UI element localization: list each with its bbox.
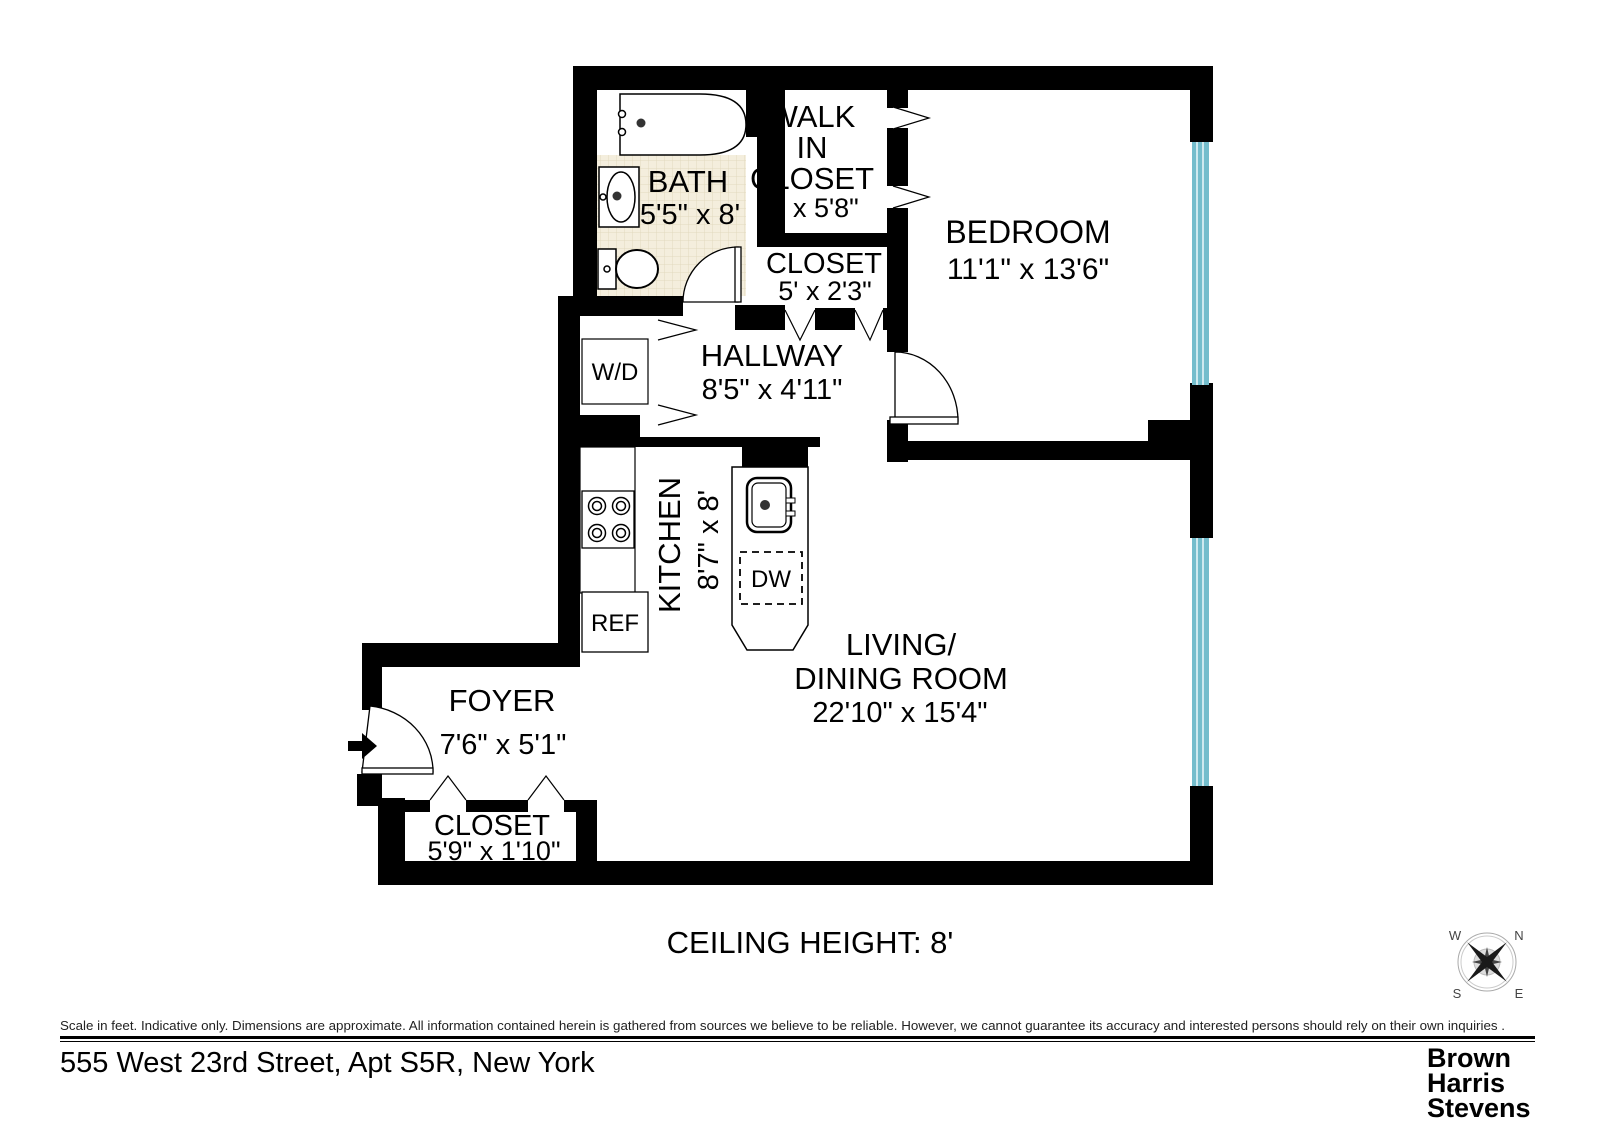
compass-e: E bbox=[1515, 986, 1524, 1001]
living-dining-label: LIVING/ DINING ROOM 22'10" x 15'4" bbox=[794, 627, 1008, 729]
bathtub-faucet-handle-bottom bbox=[619, 129, 626, 136]
brand-logo: Brown Harris Stevens bbox=[1427, 1043, 1531, 1123]
entry-door-leaf bbox=[362, 768, 433, 774]
hallway-label: HALLWAY 8'5" x 4'11" bbox=[701, 338, 843, 406]
hall-closet-label: CLOSET 5' x 2'3" bbox=[766, 248, 882, 306]
wall-right-mid bbox=[1190, 383, 1213, 538]
hallway-dims: 8'5" x 4'11" bbox=[702, 374, 843, 406]
wall-wic-bottom bbox=[757, 233, 887, 247]
refrigerator-label: REF bbox=[591, 610, 639, 637]
wall-foyer-closet-top-a bbox=[403, 800, 430, 812]
toilet-bowl bbox=[616, 250, 658, 288]
wall-bedroom-left-b bbox=[887, 128, 908, 186]
living-dims: 22'10" x 15'4" bbox=[812, 697, 987, 729]
bedroom-name: BEDROOM bbox=[945, 214, 1110, 250]
foyer-closet-bifold-right bbox=[528, 776, 564, 800]
island-faucet-a bbox=[786, 498, 795, 503]
wic-line1: WALK bbox=[769, 99, 856, 134]
bedroom-door-leaf bbox=[890, 417, 958, 424]
toilet-flush bbox=[604, 266, 610, 272]
bath-door-leaf bbox=[735, 247, 741, 302]
wall-bath-bottom bbox=[573, 296, 683, 316]
bedroom-label: BEDROOM 11'1" x 13'6" bbox=[945, 214, 1110, 286]
wall-hall-closet-bottom-mid bbox=[815, 308, 855, 330]
wall-kitchen-left bbox=[558, 296, 580, 645]
foyer-closet-bifold-left bbox=[430, 776, 466, 800]
hall-closet-bifold-right bbox=[855, 310, 883, 340]
wic-door-bottom bbox=[893, 186, 929, 208]
wall-bedroom-living-divider bbox=[887, 441, 1213, 460]
kitchen-name: KITCHEN bbox=[652, 477, 687, 613]
wic-dims: 5' x 5'8" bbox=[765, 193, 858, 223]
wd-door-bottom bbox=[658, 405, 696, 425]
ceiling-height-note: CEILING HEIGHT: 8' bbox=[667, 925, 954, 960]
wall-foyer-closet-left bbox=[378, 798, 405, 885]
wall-island-top bbox=[742, 447, 808, 467]
wall-wd-bottom bbox=[558, 415, 640, 447]
footer-rule-thin bbox=[60, 1041, 1535, 1042]
bedroom-window bbox=[1192, 142, 1209, 385]
bedroom-door-swing bbox=[895, 352, 958, 421]
wd-door-top bbox=[658, 320, 696, 340]
wall-right-top bbox=[1190, 66, 1213, 142]
living-line2: DINING ROOM bbox=[794, 661, 1008, 696]
island-faucet-b bbox=[786, 511, 795, 516]
washer-dryer-label: W/D bbox=[592, 359, 639, 386]
footer-rule-thick bbox=[60, 1036, 1535, 1039]
bath-name: BATH bbox=[648, 164, 728, 199]
logo-line3: Stevens bbox=[1427, 1093, 1531, 1123]
footer: Scale in feet. Indicative only. Dimensio… bbox=[60, 1018, 1535, 1123]
wall-foyer-left-upper bbox=[362, 643, 382, 710]
hall-closet-bifold-left bbox=[785, 310, 815, 340]
disclaimer-text: Scale in feet. Indicative only. Dimensio… bbox=[60, 1018, 1505, 1033]
wall-foyer-top bbox=[362, 643, 580, 667]
wic-door-top bbox=[893, 107, 929, 129]
wic-line3: CLOSET bbox=[750, 161, 874, 196]
compass-w: W bbox=[1449, 928, 1462, 943]
island-sink-drain bbox=[760, 500, 770, 510]
kitchen-label: KITCHEN 8'7" x 8' bbox=[652, 477, 725, 613]
wall-kitchen-top bbox=[640, 437, 820, 447]
wall-bedroom-left-a bbox=[887, 66, 908, 108]
floorplan-page: BATH 5'5" x 8' WALK IN CLOSET 5' x 5'8" … bbox=[0, 0, 1600, 1131]
wall-hall-top-left bbox=[735, 305, 785, 330]
compass-rose: W N S E bbox=[1449, 928, 1524, 1001]
foyer-label: FOYER 7'6" x 5'1" bbox=[440, 683, 567, 761]
wall-bedroom-left-c bbox=[887, 208, 908, 352]
foyer-dims: 7'6" x 5'1" bbox=[440, 729, 567, 761]
hallway-name: HALLWAY bbox=[701, 338, 843, 373]
bathtub-drain bbox=[637, 119, 646, 128]
bath-dims: 5'5" x 8' bbox=[640, 199, 740, 231]
wall-foyer-closet-right bbox=[576, 800, 597, 861]
bath-sink-faucet bbox=[600, 194, 606, 200]
bath-label: BATH 5'5" x 8' bbox=[640, 164, 740, 231]
foyer-closet-dims: 5'9" x 1'10" bbox=[427, 836, 560, 866]
compass-n: N bbox=[1514, 928, 1523, 943]
dishwasher-label: DW bbox=[751, 566, 791, 593]
walk-in-closet-label: WALK IN CLOSET 5' x 5'8" bbox=[750, 99, 874, 223]
foyer-closet-label: CLOSET 5'9" x 1'10" bbox=[427, 810, 560, 866]
wall-divider-block bbox=[1148, 420, 1192, 441]
bathtub-faucet-handle-top bbox=[619, 111, 626, 118]
living-line1: LIVING/ bbox=[846, 627, 957, 662]
hall-closet-dims: 5' x 2'3" bbox=[778, 276, 871, 306]
wall-bath-left bbox=[573, 66, 597, 316]
living-window bbox=[1192, 538, 1209, 786]
address-text: 555 West 23rd Street, Apt S5R, New York bbox=[60, 1047, 595, 1079]
kitchen-dims: 8'7" x 8' bbox=[693, 490, 725, 590]
bedroom-dims: 11'1" x 13'6" bbox=[947, 253, 1109, 286]
foyer-name: FOYER bbox=[449, 683, 556, 718]
entry-door-swing bbox=[362, 706, 433, 772]
compass-s: S bbox=[1453, 986, 1462, 1001]
bath-sink-drain bbox=[613, 192, 622, 201]
wic-line2: IN bbox=[797, 130, 828, 165]
